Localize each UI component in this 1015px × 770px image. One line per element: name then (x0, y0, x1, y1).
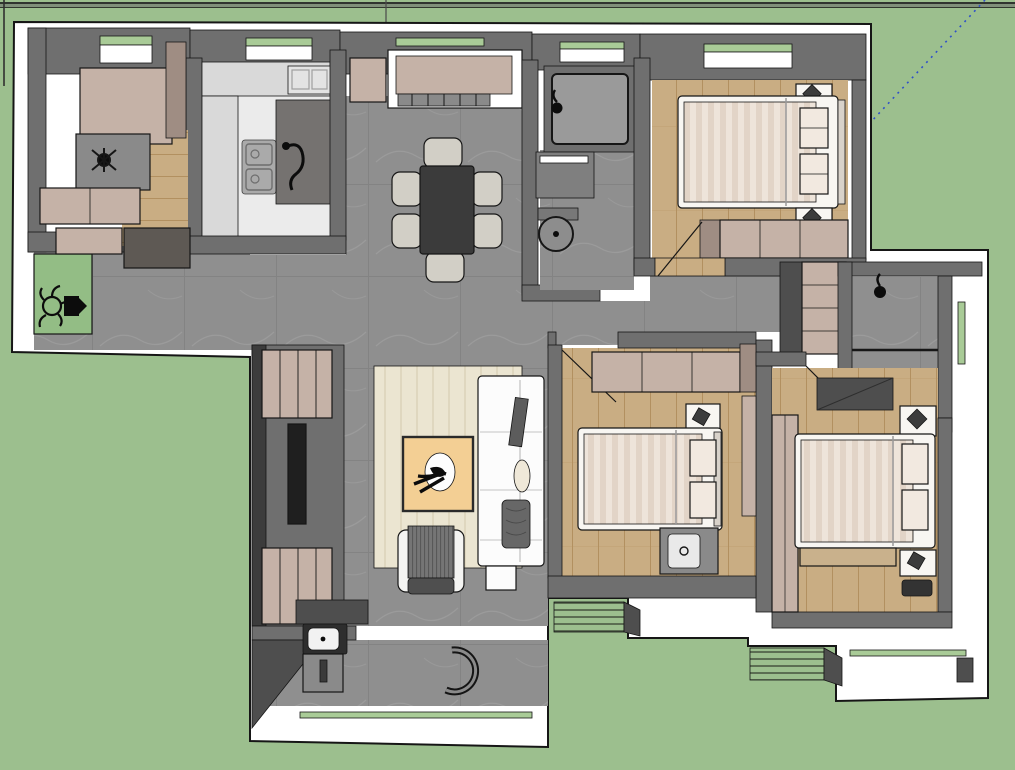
study-kitchen-wall (186, 58, 202, 240)
chest-side (780, 262, 802, 354)
bedroom2-side-cabinet[interactable] (742, 396, 756, 516)
sofa[interactable] (478, 376, 544, 590)
desk[interactable] (80, 68, 172, 144)
kitchen-bottom-wall (186, 236, 346, 254)
study-cabinet[interactable] (76, 134, 150, 190)
dining-window (396, 38, 484, 46)
pillar (957, 658, 973, 682)
sofa-side-table (486, 566, 516, 590)
bed-end-bench[interactable] (800, 548, 896, 566)
ensuite-top-wall (838, 262, 982, 276)
ac-louver-platform (750, 648, 824, 680)
dining-chair[interactable] (426, 252, 464, 282)
headboard (838, 100, 845, 204)
dining-hutch-slats (398, 94, 490, 106)
armchair[interactable] (398, 526, 464, 594)
double-bed[interactable] (578, 428, 722, 530)
pillow (902, 490, 928, 530)
kitchen-counter-left[interactable] (202, 96, 238, 238)
pillow (902, 444, 928, 484)
shoe-cabinet[interactable] (56, 228, 122, 254)
bedroom1-window (704, 44, 792, 52)
master-top-wall (756, 352, 806, 366)
kitchen-window (246, 38, 312, 46)
double-bed[interactable] (678, 96, 845, 208)
media-shelf-top[interactable] (262, 350, 332, 418)
dining-chair[interactable] (424, 138, 462, 168)
bedroom2-bottom-wall (548, 576, 756, 598)
ensuite-window (958, 302, 965, 364)
floorplan-svg[interactable] (0, 0, 1015, 770)
bedroom-middle[interactable] (548, 332, 772, 612)
dining-bath-wall (522, 60, 538, 295)
bedroom2-top-wall (618, 332, 756, 348)
kitchen-dining-wall (330, 50, 346, 240)
sofa-pillow-textured (502, 500, 530, 548)
dining-hutch-panel (396, 56, 512, 94)
dining-chair[interactable] (392, 172, 422, 206)
balcony-washbasin[interactable] (303, 624, 347, 654)
dining-chair[interactable] (472, 172, 502, 206)
bedroom1-right-wall (852, 80, 866, 260)
corridor-floor (250, 255, 346, 350)
wardrobe-end (700, 220, 720, 258)
floorplan-3d-viewport[interactable] (0, 0, 1015, 770)
ac-louver-platform (554, 602, 624, 632)
double-bed[interactable] (795, 434, 935, 548)
bedroom1-wardrobe[interactable] (720, 220, 848, 258)
entry-door-mat (34, 254, 92, 334)
living-room[interactable] (252, 345, 544, 626)
master-window (850, 650, 966, 656)
bedroom2-wardrobe[interactable] (592, 352, 740, 392)
entry-tall-cabinet[interactable] (124, 228, 190, 268)
bedroom-hallway[interactable] (780, 262, 846, 354)
master-right-wall (938, 418, 952, 612)
stove-cooktop[interactable] (242, 140, 276, 194)
master-floor-box (902, 580, 932, 596)
dining-table[interactable] (420, 166, 474, 254)
kitchen[interactable] (186, 50, 346, 254)
dining-cabinet[interactable] (350, 58, 386, 102)
bedroom2-left-wall (548, 345, 562, 578)
pillow (690, 482, 716, 518)
shower-tray[interactable] (552, 74, 628, 144)
ensuite-right-wall (938, 276, 952, 418)
dining-chair[interactable] (392, 214, 422, 248)
bedroom2-master-wall (756, 340, 772, 612)
tv[interactable] (288, 424, 306, 524)
bath-bedroom1-wall (634, 58, 650, 270)
study-window (100, 36, 152, 45)
study-tall-cabinet[interactable] (166, 42, 186, 138)
balcony-window (300, 712, 532, 718)
dining-chair[interactable] (472, 214, 502, 248)
pillow (690, 440, 716, 476)
kitchen-peninsula[interactable] (276, 100, 332, 204)
master-bottom-wall (772, 612, 952, 628)
sofa-pillow (514, 460, 530, 492)
main-bathroom[interactable] (536, 58, 650, 290)
bedroom-top-right[interactable] (634, 80, 866, 276)
coffee-table[interactable] (403, 437, 473, 511)
balcony-console (296, 600, 368, 624)
bathroom-window (560, 42, 624, 49)
